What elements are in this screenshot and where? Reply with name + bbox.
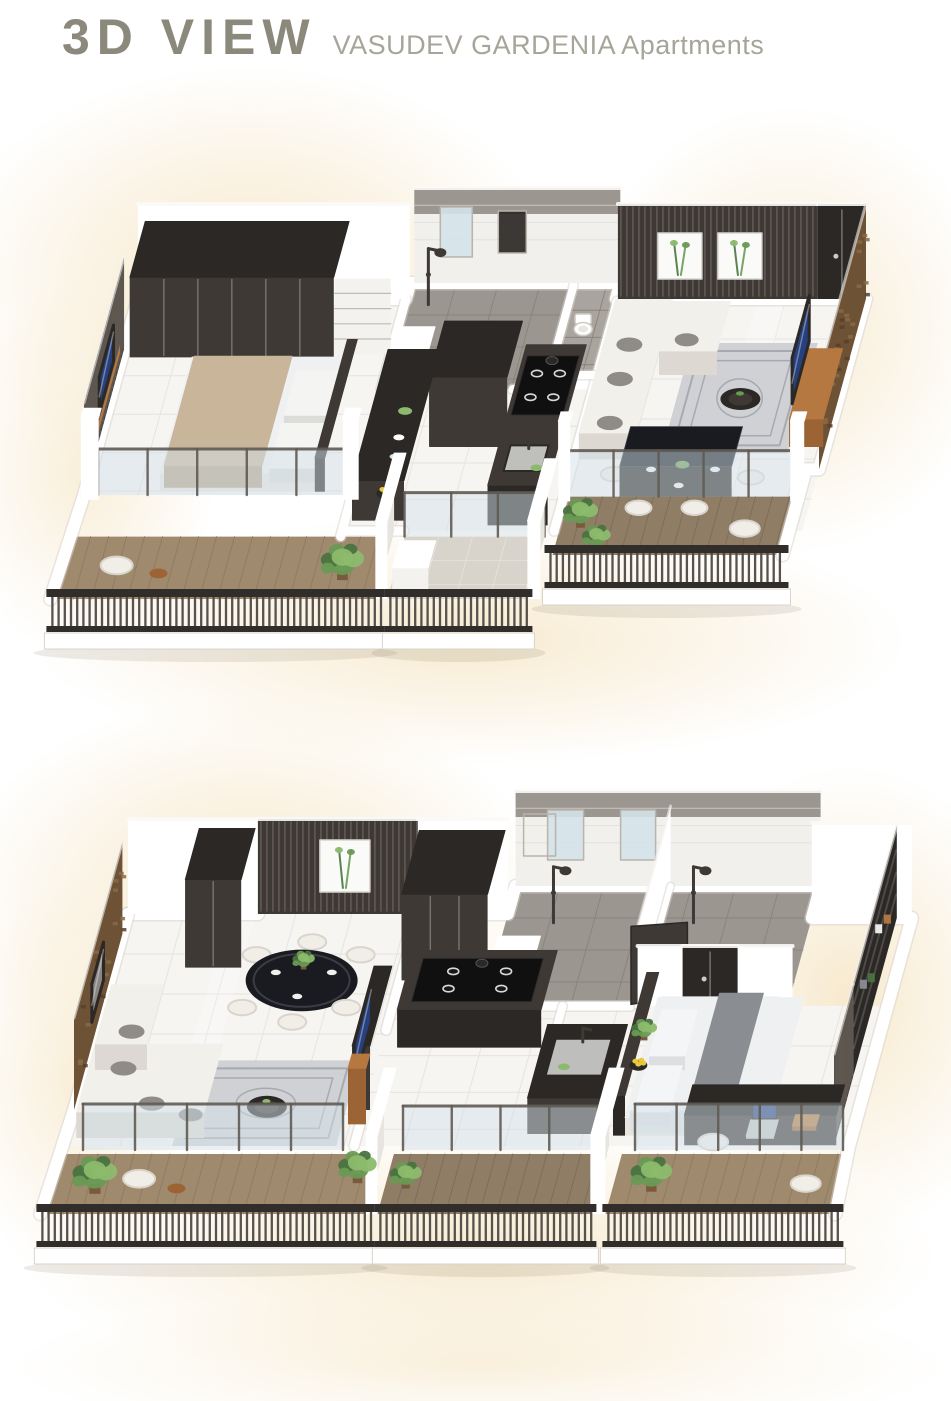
- dining-chair: [681, 501, 707, 515]
- glass-partition: [403, 1106, 598, 1150]
- page-subtitle: VASUDEV GARDENIA Apartments: [333, 32, 765, 59]
- glass-partition: [98, 449, 346, 495]
- gas-hob: [411, 958, 543, 1001]
- dining-chair: [278, 1014, 306, 1029]
- balcony-chair: [730, 520, 760, 537]
- glass-partition: [405, 493, 545, 537]
- brochure-page: 3D VIEW VASUDEV GARDENIA Apartments: [0, 0, 951, 1401]
- page-header: 3D VIEW VASUDEV GARDENIA Apartments: [62, 12, 764, 62]
- dining-chair: [298, 934, 326, 949]
- dining-chair: [228, 1000, 256, 1015]
- wall-art: [320, 840, 370, 892]
- glass-partition: [569, 451, 794, 497]
- wall-art: [718, 233, 762, 279]
- 3d-floorplan-canvas: [0, 0, 951, 1401]
- unit-b-3d-view: [0, 695, 951, 1401]
- balcony-chair: [123, 1170, 155, 1188]
- glass-partition: [83, 1104, 343, 1150]
- balcony-railing: [361, 1204, 609, 1277]
- wardrobe: [130, 221, 349, 357]
- balcony-chair: [101, 557, 133, 575]
- dining-chair: [347, 947, 375, 962]
- balcony-chair: [791, 1175, 821, 1192]
- dining-chair: [625, 501, 651, 515]
- unit-a-3d-view: [0, 65, 951, 765]
- toilet: [574, 314, 592, 336]
- glass-partition: [635, 1104, 843, 1150]
- wall-art: [658, 233, 702, 279]
- dining-chair: [332, 1000, 360, 1015]
- page-title: 3D VIEW: [62, 12, 317, 62]
